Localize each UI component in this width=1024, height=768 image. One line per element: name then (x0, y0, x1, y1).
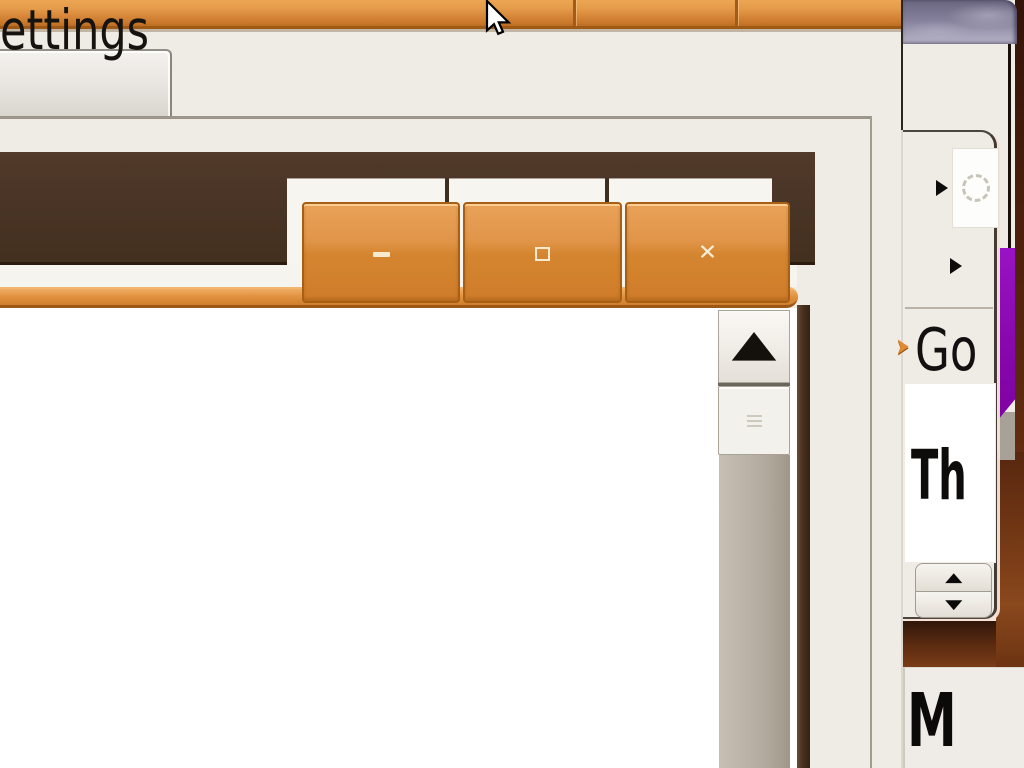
go-text: Go (915, 320, 977, 379)
spinner-box (952, 148, 999, 228)
caret-icon: ➤ (896, 335, 909, 358)
spin-up-button[interactable]: ▲ (915, 563, 992, 592)
minimize-icon (373, 252, 390, 257)
scrollbar-grip-icon (747, 420, 762, 422)
th-text: Th (911, 442, 967, 511)
window-content-area (0, 308, 797, 768)
notebook-page-border-top (0, 116, 872, 119)
purple-accent-sliver (998, 248, 1015, 420)
spin-down-button[interactable]: ▼ (915, 591, 992, 618)
window-right-border (797, 305, 810, 768)
scrollbar-thumb[interactable] (718, 386, 790, 455)
notebook-page-border-right (870, 116, 872, 768)
menu-separator (905, 307, 993, 309)
toolbar-divider (735, 0, 738, 26)
window-bottom-edge (903, 621, 996, 667)
scrollbar-grip-icon (747, 415, 762, 417)
tab-settings-label: ettings (0, 4, 149, 59)
spin-up-icon: ▲ (945, 571, 962, 584)
maximize-button[interactable] (463, 202, 622, 303)
magnified-desktop: ettings ✕ ▲ ➤ Go Th (0, 0, 1024, 768)
right-panel-border-top (901, 0, 903, 130)
minimize-button[interactable] (302, 202, 460, 303)
maximize-icon (535, 247, 550, 261)
scrollbar-up-button[interactable]: ▲ (718, 310, 790, 383)
submenu-icon[interactable] (950, 258, 962, 274)
submenu-icon[interactable] (936, 180, 948, 196)
spinner-icon (962, 174, 990, 202)
close-button[interactable]: ✕ (625, 202, 790, 303)
scrollbar-grip-icon (747, 425, 762, 427)
right-window-edge (1008, 44, 1011, 250)
m-text: M (907, 684, 957, 758)
desktop-wallpaper-patch (996, 452, 1024, 670)
scrollbar-sliver (998, 412, 1015, 460)
toolbar-divider (573, 0, 576, 26)
cloudy-titlebar (903, 0, 1017, 44)
close-icon: ✕ (698, 243, 717, 265)
scroll-up-icon: ▲ (732, 325, 777, 362)
mouse-cursor-icon (484, 0, 518, 40)
spin-down-icon: ▼ (945, 598, 962, 611)
scrollbar-track[interactable] (719, 455, 790, 768)
